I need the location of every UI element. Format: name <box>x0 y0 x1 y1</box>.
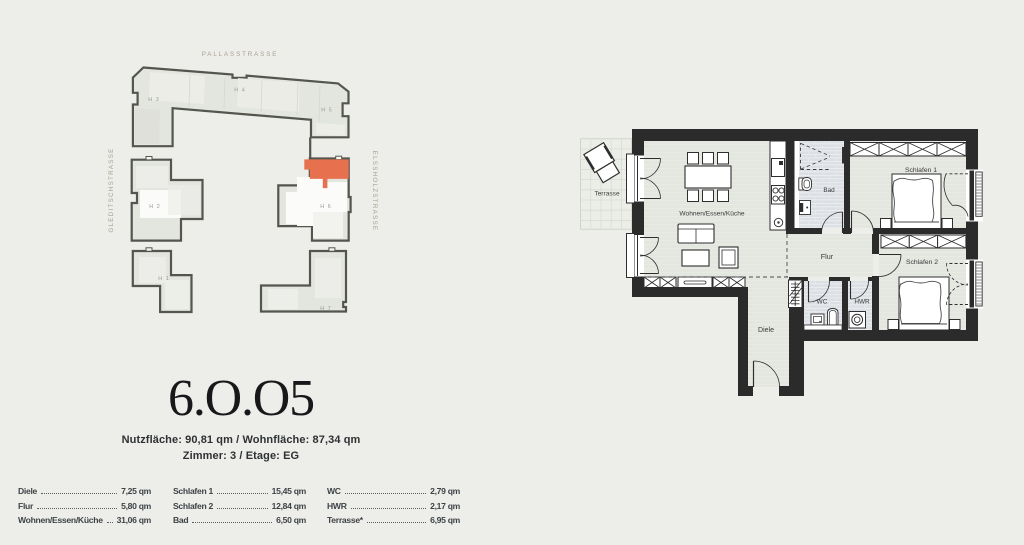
svg-text:Schlafen 1: Schlafen 1 <box>905 167 937 174</box>
svg-text:H 7: H 7 <box>320 306 331 312</box>
svg-text:Bad: Bad <box>823 187 835 194</box>
svg-text:ELSSHOLZSTRASSE: ELSSHOLZSTRASSE <box>371 151 378 232</box>
svg-text:Flur: Flur <box>821 252 834 261</box>
svg-text:Diele: Diele <box>758 327 774 334</box>
svg-text:Nutzfläche: 90,81 qm / Wohnflä: Nutzfläche: 90,81 qm / Wohnfläche: 87,34… <box>122 434 361 446</box>
svg-text:H 1: H 1 <box>158 276 169 282</box>
svg-text:H 4: H 4 <box>234 88 245 94</box>
svg-text:Schlafen 2: Schlafen 2 <box>906 259 938 266</box>
svg-text:HWR: HWR <box>854 299 870 306</box>
svg-text:PALLASSTRASSE: PALLASSTRASSE <box>202 51 279 58</box>
svg-text:6.O.O5: 6.O.O5 <box>168 370 314 427</box>
svg-text:GLEDITSCHSTRASSE: GLEDITSCHSTRASSE <box>108 147 115 232</box>
svg-text:H 5: H 5 <box>321 108 332 114</box>
svg-text:Terrasse: Terrasse <box>594 191 620 198</box>
svg-text:H 2: H 2 <box>149 204 160 210</box>
svg-text:H 6: H 6 <box>320 204 331 210</box>
svg-text:Zimmer: 3 / Etage: EG: Zimmer: 3 / Etage: EG <box>183 450 299 462</box>
svg-text:Wohnen/Essen/Küche: Wohnen/Essen/Küche <box>679 211 744 218</box>
svg-text:H 3: H 3 <box>148 97 159 103</box>
